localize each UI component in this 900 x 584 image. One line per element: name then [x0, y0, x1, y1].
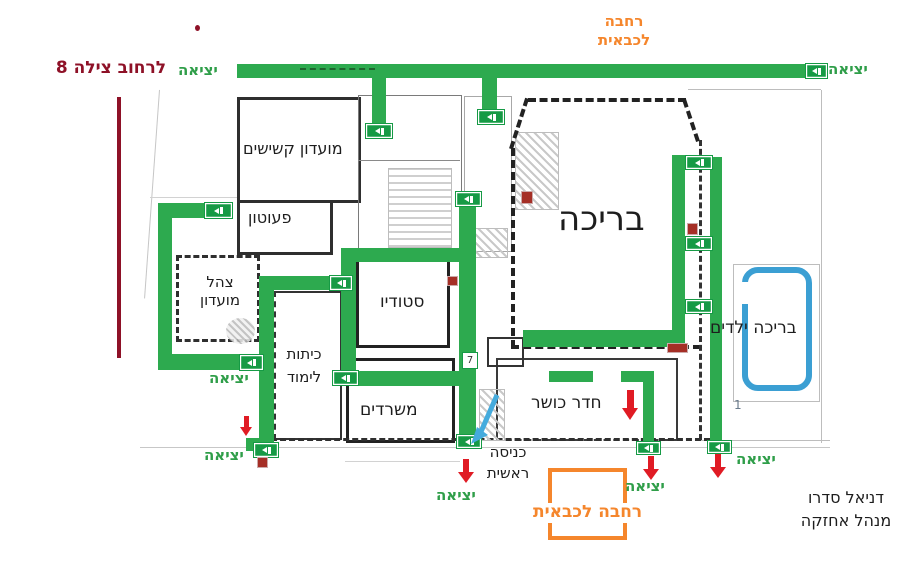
exit-label: יציאה [736, 450, 776, 468]
red-arrow-down [458, 459, 474, 483]
main-entrance-label: כניסה ראשית [477, 442, 539, 484]
exit-label: יציאה [828, 60, 868, 78]
classrooms-line2: לימוד [270, 366, 338, 389]
fire-equipment-sign [521, 191, 533, 204]
route-offices-top [356, 371, 474, 386]
exit-sign-icon [240, 355, 263, 370]
route-pool-bottom [523, 330, 673, 347]
fire-area-top-label: רחבה לכבאית [588, 12, 660, 50]
main-entrance-line1: כניסה [477, 442, 539, 463]
red-arrow-down [622, 390, 638, 420]
route-studio-left [341, 248, 356, 383]
room-label-pool: בריכה [558, 200, 645, 239]
exit-sign-icon [456, 192, 481, 206]
evacuation-floor-plan: לרחוב צילה 8 יציאה רחבה לכבאית יציאה מוע… [0, 0, 900, 584]
fire-equipment-sign [667, 343, 688, 353]
route-east-rail-left [672, 155, 685, 347]
boundary-right-vertical [821, 90, 822, 443]
room-label-nursery: פעוטון [248, 209, 291, 227]
stairs-hatch-main [388, 168, 452, 248]
red-arrow-down [240, 416, 252, 436]
manager-line1: דניאל סדרו [786, 486, 900, 509]
red-arrow-down [710, 454, 726, 478]
classrooms-line1: כיתות [270, 343, 338, 366]
route-gym-segment [549, 371, 593, 382]
exit-sign-icon [330, 276, 352, 290]
pool-top-wall [528, 98, 686, 102]
room-label-kids-pool: בריכה ילדים [710, 319, 797, 339]
route-top-bar [237, 64, 807, 78]
stair-block-divider [358, 160, 460, 161]
exit-sign-icon [637, 442, 660, 454]
entrance-blue-arrow [466, 392, 504, 446]
route-tzahal-bottom [158, 354, 242, 370]
fire-area-bottom-label: רחבה לכבאית [531, 503, 644, 523]
marker-7-box: 7 [462, 352, 478, 369]
room-label-tzahal: צהל מועדון [184, 273, 256, 309]
exit-sign-icon [366, 124, 392, 138]
room-label-seniors-club: מועדון קשישים [243, 140, 343, 158]
exit-sign-icon [478, 110, 504, 124]
manager-label: דניאל סדרו מנהל אחזקה [786, 486, 900, 532]
exit-sign-icon [686, 300, 712, 313]
exit-label: יציאה [436, 486, 476, 504]
route-gym-L-vertical [643, 380, 654, 442]
street-boundary-line [117, 97, 121, 358]
pool-right-wall [699, 140, 702, 440]
room-label-classrooms: כיתות לימוד [270, 343, 338, 389]
boundary-top-right [688, 89, 821, 90]
pool-left-wall [511, 148, 515, 348]
red-dot [195, 25, 200, 31]
exit-label: יציאה [204, 446, 244, 464]
main-entrance-line2: ראשית [477, 463, 539, 484]
pool-topright-slant [682, 99, 700, 142]
fire-area-top-line2: לכבאית [588, 31, 660, 50]
route-tzahal-left [158, 203, 172, 370]
fire-area-top-line1: רחבה [588, 12, 660, 31]
fire-equipment-sign [687, 223, 698, 235]
exit-sign-icon [254, 443, 278, 457]
street-label: לרחוב צילה 8 [40, 59, 166, 79]
ground-line-3 [150, 197, 237, 198]
fire-equipment-sign [257, 457, 268, 468]
exit-sign-icon [205, 203, 232, 218]
room-label-studio: סטודיו [380, 293, 424, 313]
exit-sign-icon [708, 441, 731, 453]
ground-line-2 [345, 461, 460, 462]
route-top-bar-plan-dashes [300, 68, 375, 70]
entrance-vestibule [487, 337, 524, 367]
room-label-gym: חדר כושר [531, 394, 602, 414]
marker-1: 1 [734, 399, 742, 413]
route-drop-2 [482, 77, 497, 111]
room-label-offices: משרדים [360, 401, 418, 421]
kids-pool-outline-gap [740, 282, 750, 304]
tzahal-line1: צהל [184, 273, 256, 291]
exit-sign-icon [686, 237, 712, 250]
exit-label: יציאה [209, 369, 249, 387]
route-studio-top [341, 248, 474, 262]
tzahal-line2: מועדון [184, 291, 256, 309]
exit-label: יציאה [625, 477, 665, 495]
route-drop-1 [372, 77, 386, 125]
exit-sign-icon [806, 64, 827, 78]
exit-label: יציאה [178, 61, 218, 79]
manager-line2: מנהל אחזקה [786, 509, 900, 532]
tree-symbol [226, 318, 255, 344]
fire-equipment-sign [447, 276, 458, 286]
exit-sign-icon [686, 156, 712, 169]
